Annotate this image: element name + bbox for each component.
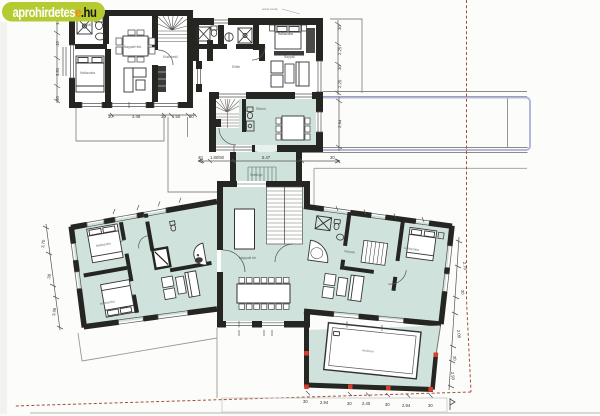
- svg-text:30: 30: [303, 399, 308, 404]
- svg-text:2.09: 2.09: [456, 330, 462, 339]
- svg-text:3.81: 3.81: [55, 67, 60, 76]
- svg-text:Étkező: Étkező: [256, 106, 266, 111]
- svg-text:.40: .40: [55, 96, 60, 102]
- svg-text:30: 30: [330, 155, 335, 160]
- svg-text:30: 30: [189, 114, 194, 119]
- svg-text:2.94: 2.94: [402, 403, 411, 408]
- svg-text:30: 30: [428, 403, 433, 408]
- svg-text:Nappali+étk.: Nappali+étk.: [124, 45, 142, 49]
- svg-text:2.40: 2.40: [362, 401, 371, 406]
- svg-text:Fürdő: Fürdő: [83, 23, 92, 27]
- svg-text:5.47: 5.47: [262, 155, 271, 160]
- svg-text:.10: .10: [55, 41, 60, 47]
- svg-text:30: 30: [161, 114, 166, 119]
- svg-text:aprohirdetese.hu: aprohirdetese.hu: [13, 5, 97, 20]
- svg-text:2.25: 2.25: [337, 46, 342, 55]
- svg-text:2.70: 2.70: [462, 262, 468, 271]
- svg-text:3.48: 3.48: [132, 114, 141, 119]
- svg-text:2.94: 2.94: [337, 119, 342, 128]
- svg-text:Hálószoba: Hálószoba: [278, 32, 293, 36]
- svg-text:30: 30: [347, 401, 352, 406]
- svg-text:40: 40: [198, 155, 203, 160]
- svg-text:Nappali: Nappali: [284, 55, 295, 59]
- svg-text:1.80/50: 1.80/50: [210, 155, 225, 160]
- svg-text:Előtér: Előtér: [232, 65, 241, 69]
- svg-text:1.50: 1.50: [172, 114, 181, 119]
- svg-text:30: 30: [385, 402, 390, 407]
- svg-text:Szélfogó: Szélfogó: [250, 173, 263, 177]
- svg-text:2.94: 2.94: [320, 400, 329, 405]
- svg-text:eresz vonal: eresz vonal: [262, 7, 278, 11]
- svg-text:2.20: 2.20: [337, 79, 342, 88]
- svg-text:Hálószoba: Hálószoba: [80, 71, 95, 75]
- svg-text:30: 30: [108, 114, 113, 119]
- svg-text:Nappali tér: Nappali tér: [239, 256, 257, 260]
- svg-text:2.93: 2.93: [450, 372, 456, 381]
- svg-text:Közlekedő: Közlekedő: [163, 55, 178, 59]
